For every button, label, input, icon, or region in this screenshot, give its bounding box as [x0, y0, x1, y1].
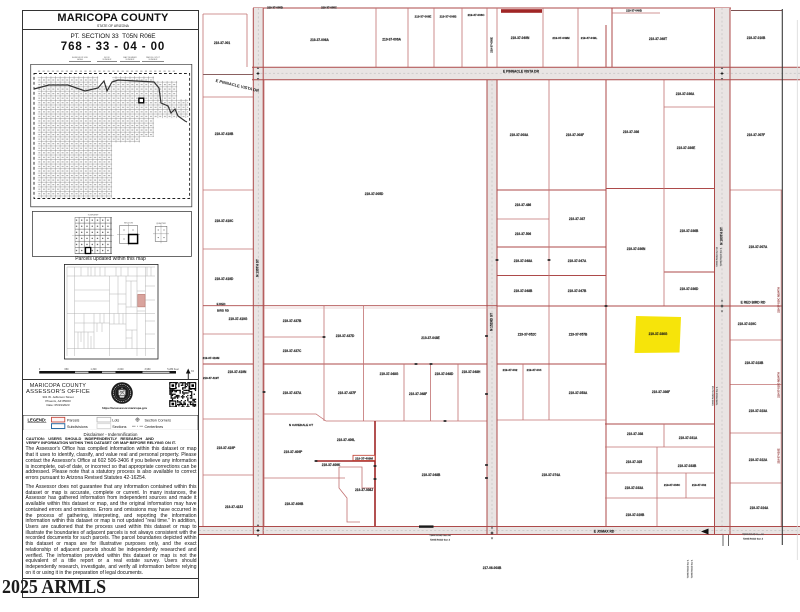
svg-text:5,280 Feet: 5,280 Feet: [167, 368, 179, 371]
svg-text:219-37-409P: 219-37-409P: [284, 450, 303, 454]
svg-text:T2005 ROAD Sur 4: T2005 ROAD Sur 4: [687, 559, 690, 578]
svg-text:219-37-037: 219-37-037: [569, 217, 586, 221]
svg-text:219-37-002: 219-37-002: [503, 368, 518, 372]
svg-text:219-37-029B: 219-37-029B: [626, 513, 645, 517]
svg-text:219-37-001: 219-37-001: [214, 41, 231, 45]
svg-text:T2005 ROAD Sur 4: T2005 ROAD Sur 4: [716, 386, 719, 405]
svg-text:N: N: [191, 369, 193, 373]
svg-text:219-37-005D: 219-37-005D: [365, 192, 384, 196]
svg-text:219-37-048G: 219-37-048G: [380, 372, 399, 376]
svg-text:E PINNACLE VISTA DR: E PINNACLE VISTA DR: [503, 69, 540, 73]
svg-text:219-37-038: 219-37-038: [627, 432, 644, 436]
svg-text:219-37-437B: 219-37-437B: [283, 319, 302, 323]
svg-text:LEGEND:: LEGEND:: [28, 417, 47, 422]
svg-text:219-37-036A: 219-37-036A: [676, 92, 695, 96]
svg-text:219-37-419M: 219-37-419M: [203, 356, 220, 360]
svg-text:219-37-419N: 219-37-419N: [228, 370, 247, 374]
svg-text:T2005 ROAD Sur: 4: T2005 ROAD Sur: 4: [430, 539, 451, 542]
svg-text:219-37-053A: 219-37-053A: [569, 391, 588, 395]
svg-text:219-37-052C: 219-37-052C: [518, 333, 537, 337]
svg-text:219-37-029C: 219-37-029C: [738, 322, 757, 326]
svg-text:219-37-506: 219-37-506: [515, 232, 532, 236]
svg-text:219-37-005B: 219-37-005B: [267, 5, 283, 9]
svg-text:0: 0: [39, 368, 41, 371]
svg-text:219-37-419B: 219-37-419B: [215, 132, 234, 136]
svg-text:219-37-048E: 219-37-048E: [421, 336, 439, 340]
svg-text:219-37-048F: 219-37-048F: [409, 392, 427, 396]
svg-text:219-37-006A: 219-37-006A: [382, 38, 401, 42]
svg-text:219-37-036J: 219-37-036J: [355, 488, 373, 492]
svg-text:219-37-036: 219-37-036: [623, 130, 640, 134]
svg-text:219-37-419G: 219-37-419G: [229, 317, 248, 321]
svg-text:219-37-036B: 219-37-036B: [680, 229, 699, 233]
svg-text:BIRD RD: BIRD RD: [217, 309, 229, 313]
svg-text:219-37-419T: 219-37-419T: [203, 376, 219, 380]
svg-text:219-37-033A: 219-37-033A: [625, 486, 644, 490]
svg-text:219-37-048B: 219-37-048B: [422, 473, 441, 477]
svg-text:Parcels: Parcels: [67, 418, 79, 422]
svg-text:219-37-036N: 219-37-036N: [627, 247, 646, 251]
svg-text:Centerlines: Centerlines: [145, 424, 164, 428]
svg-text:219-37-419P: 219-37-419P: [217, 446, 236, 450]
svg-text:T2005 ROAD Sur: 4: T2005 ROAD Sur: 4: [743, 538, 764, 541]
svg-text:219-37-049L: 219-37-049L: [581, 36, 598, 40]
svg-text:E JOMAX RD: E JOMAX RD: [594, 530, 615, 534]
svg-text:219-37-010C N164TH: 219-37-010C N164TH: [777, 287, 781, 313]
svg-text:219-37-437F: 219-37-437F: [338, 391, 356, 395]
svg-text:219-37-025: 219-37-025: [626, 460, 643, 464]
svg-text:219-37-023B: 219-37-023B: [745, 361, 764, 365]
svg-text:N 152ND ST: N 152ND ST: [490, 313, 494, 331]
svg-text:T2005 ROAD Sur 4: T2005 ROAD Sur 4: [719, 247, 722, 266]
svg-text:219-37-006C: 219-37-006C: [468, 13, 486, 17]
svg-text:219-37-419D: 219-37-419D: [215, 277, 234, 281]
svg-text:N 160TH ST: N 160TH ST: [720, 227, 724, 245]
svg-text:SECTION: SECTION: [124, 222, 133, 224]
svg-text:Lots: Lots: [112, 418, 119, 422]
svg-text:T2005 ROAD Sur: 64: T2005 ROAD Sur: 64: [742, 533, 764, 536]
svg-text:219-37-024A: 219-37-024A: [750, 506, 769, 510]
svg-text:219-37-003A: 219-37-003A: [510, 133, 529, 137]
svg-text:219-37-049N: 219-37-049N: [511, 36, 530, 40]
svg-text:219-37-036G: 219-37-036G: [649, 332, 668, 336]
svg-text:219-37-007F: 219-37-007F: [747, 133, 765, 137]
svg-text:219-37-023A: 219-37-023A: [749, 409, 768, 413]
svg-text:T2005 ROAD Sur 64: T2005 ROAD Sur 64: [712, 385, 715, 405]
svg-text:219-37-033B: 219-37-033B: [678, 464, 697, 468]
svg-text:219-37-048D: 219-37-048D: [435, 372, 454, 376]
svg-text:219-37-048B: 219-37-048B: [514, 289, 533, 293]
svg-text:219-37-049B: 219-37-049B: [626, 8, 642, 12]
svg-text:1,320: 1,320: [91, 368, 98, 371]
svg-text:219-37-048A: 219-37-048A: [514, 259, 533, 263]
svg-text:219-37-005E: 219-37-005E: [490, 37, 494, 53]
svg-text:219-37-437A: 219-37-437A: [283, 391, 302, 395]
svg-text:219-37-048H: 219-37-048H: [462, 370, 481, 374]
svg-text:219-37-031A: 219-37-031A: [679, 436, 698, 440]
svg-text:219-37-074A: 219-37-074A: [542, 473, 561, 477]
svg-text:QUARTER: QUARTER: [156, 222, 166, 225]
svg-text:217-06-003B: 217-06-003B: [483, 566, 502, 570]
svg-text:219-37-033C: 219-37-033C: [664, 483, 680, 487]
svg-text:219-37-409B: 219-37-409B: [285, 502, 304, 506]
svg-text:E RED BIRD RD: E RED BIRD RD: [741, 301, 766, 305]
svg-text:219-37-049M: 219-37-049M: [552, 36, 570, 40]
svg-text:219-37-003F: 219-37-003F: [566, 133, 584, 137]
svg-text:219-37-022A: 219-37-022A: [749, 458, 768, 462]
svg-text:219-37-004: 219-37-004: [527, 368, 542, 372]
svg-text:219-37-006B: 219-37-006B: [440, 15, 457, 19]
svg-text:219-37-005C: 219-37-005C: [321, 5, 337, 9]
svg-text:219-37-010E: 219-37-010E: [777, 448, 781, 463]
svg-text:219-37-049T: 219-37-049T: [649, 37, 667, 41]
svg-text:219-37-006A: 219-37-006A: [310, 38, 329, 42]
svg-text:Section Corners: Section Corners: [145, 418, 172, 422]
svg-text:219-37-006E: 219-37-006E: [415, 15, 432, 19]
svg-text:Sections: Sections: [112, 424, 126, 428]
svg-text:219-37-415J: 219-37-415J: [225, 505, 243, 509]
svg-text:219-37-057B: 219-37-057B: [569, 333, 588, 337]
svg-text:219-37-010D N164TH: 219-37-010D N164TH: [777, 372, 781, 398]
svg-text:Subdivisions: Subdivisions: [67, 424, 88, 428]
svg-text:219-37-419C: 219-37-419C: [215, 219, 234, 223]
svg-text:T2005 ROAD Sur 4: T2005 ROAD Sur 4: [691, 559, 694, 578]
svg-text:219-37-036D: 219-37-036D: [680, 287, 699, 291]
svg-text:2,640: 2,640: [118, 368, 125, 371]
svg-text:E RED: E RED: [217, 302, 226, 306]
svg-text:T2005 ROAD Sur 64: T2005 ROAD Sur 64: [715, 246, 718, 266]
svg-text:219-37-047A: 219-37-047A: [568, 259, 587, 263]
svg-text:219-37-036F: 219-37-036F: [652, 390, 670, 394]
svg-text:3,960: 3,960: [145, 368, 152, 371]
svg-text:N 136TH ST: N 136TH ST: [256, 259, 260, 277]
svg-text:219-37-032: 219-37-032: [692, 483, 707, 487]
svg-text:219-37-437D: 219-37-437D: [336, 334, 355, 338]
svg-text:219-37-409M: 219-37-409M: [355, 456, 373, 460]
svg-text:219-37-409L: 219-37-409L: [337, 438, 355, 442]
svg-text:660: 660: [65, 368, 70, 371]
svg-text:219-37-010B: 219-37-010B: [747, 36, 766, 40]
svg-text:219-37-047B: 219-37-047B: [568, 289, 587, 293]
svg-text:T2005 ROAD Sur: 64: T2005 ROAD Sur: 64: [429, 534, 451, 537]
svg-text:219-37-036E: 219-37-036E: [677, 146, 695, 150]
svg-text:N CAVEDALE CT: N CAVEDALE CT: [289, 423, 313, 427]
svg-text:219-37-007A: 219-37-007A: [749, 245, 768, 249]
svg-text:TOWNSHIP: TOWNSHIP: [88, 214, 99, 216]
svg-text:219-37-486: 219-37-486: [515, 203, 532, 207]
svg-text:219-37-437C: 219-37-437C: [283, 349, 302, 353]
svg-text:219-37-409K: 219-37-409K: [322, 463, 341, 467]
